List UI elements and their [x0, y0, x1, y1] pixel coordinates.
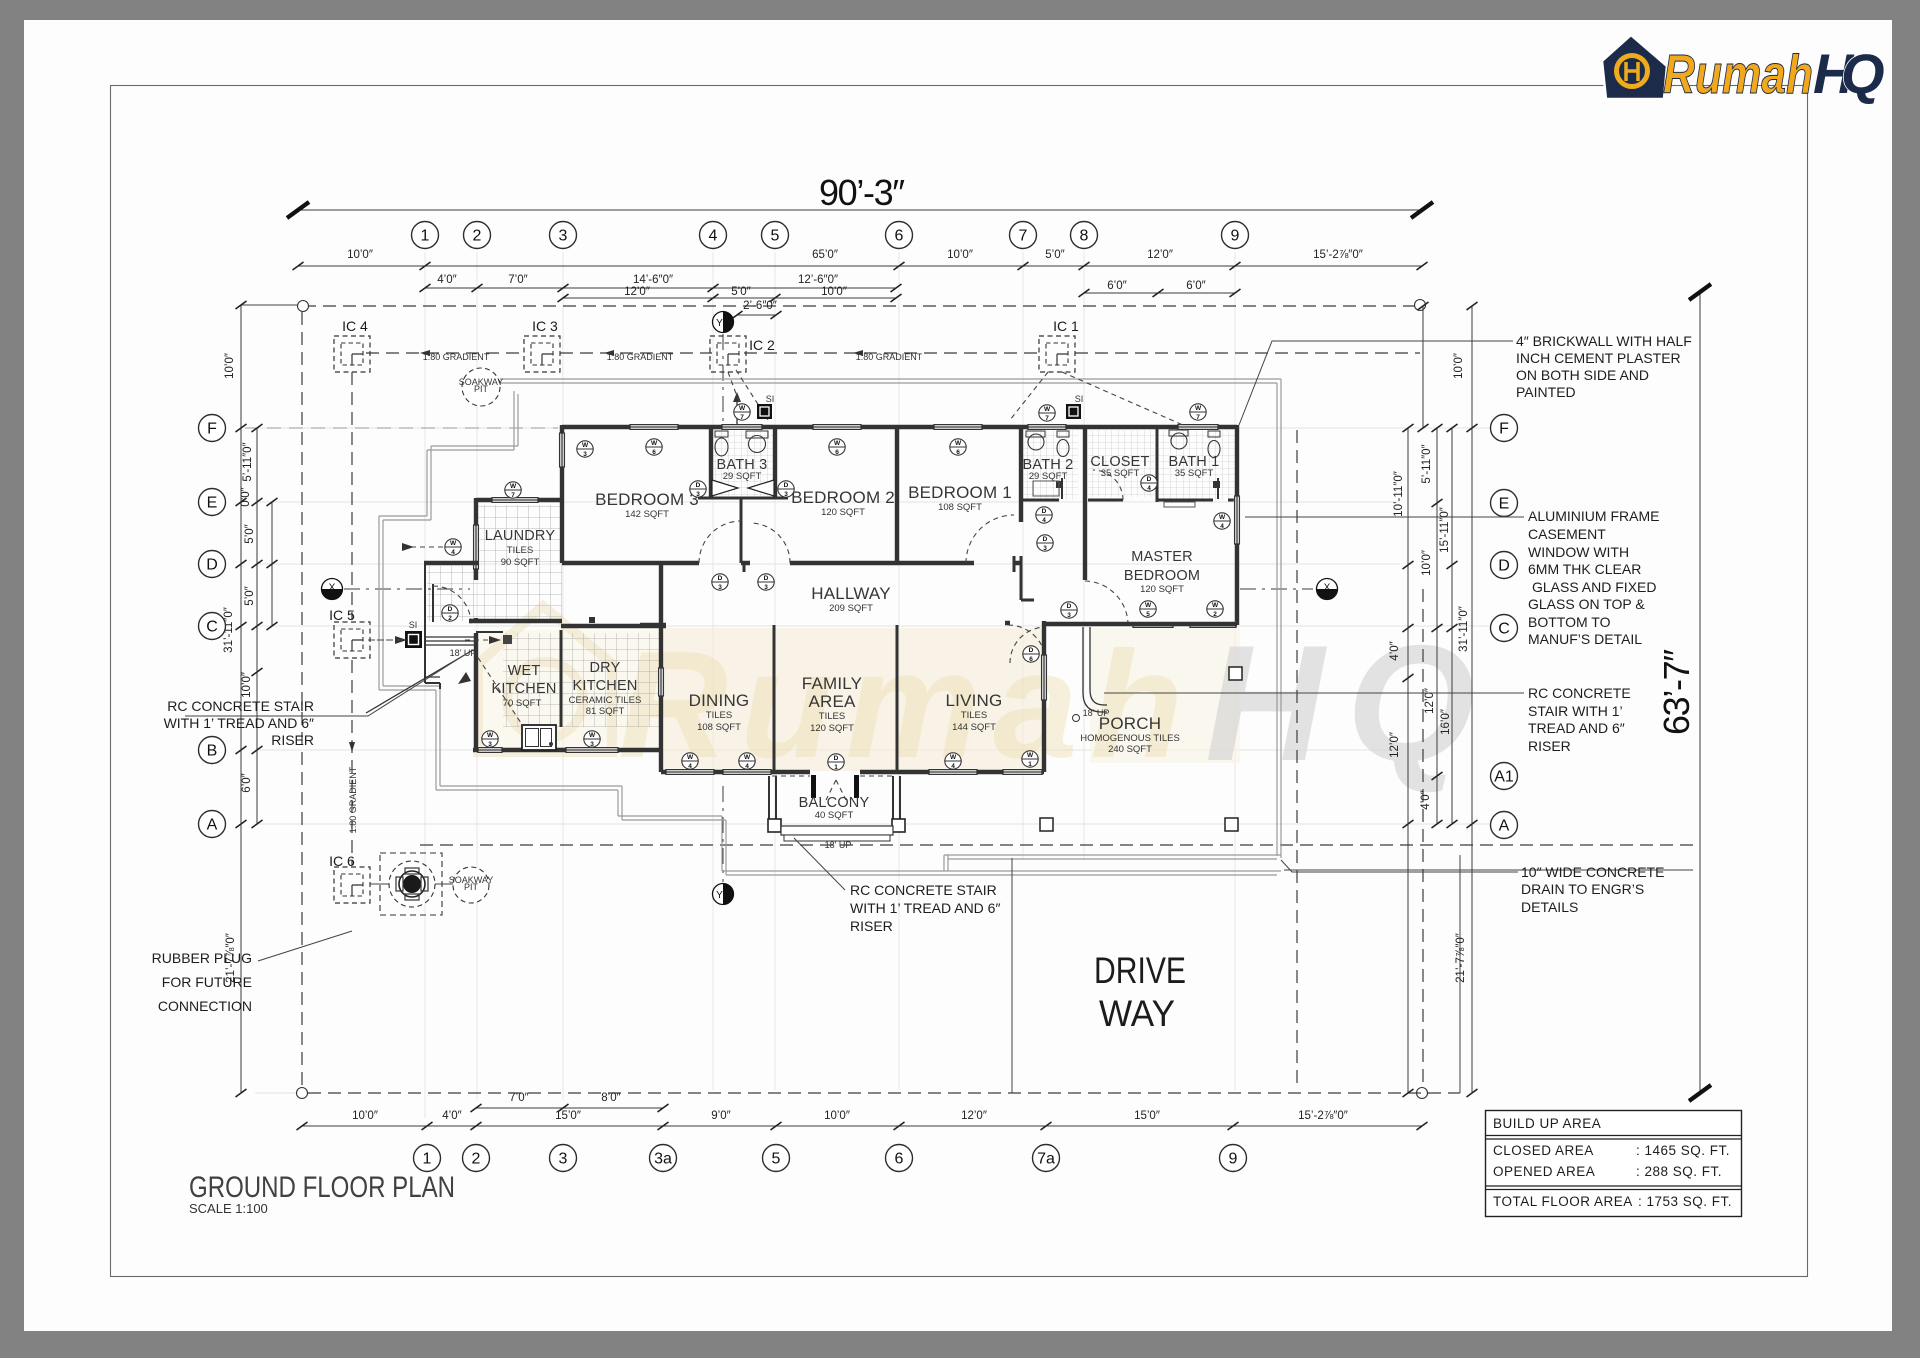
svg-text:X: X [329, 583, 336, 594]
svg-text:2: 2 [472, 1151, 481, 1168]
svg-text:15’-2⅞″0″: 15’-2⅞″0″ [1298, 1110, 1348, 1122]
svg-text:3: 3 [1067, 612, 1071, 619]
svg-text:81 SQFT: 81 SQFT [586, 706, 625, 717]
svg-text:15’-11″0″: 15’-11″0″ [1439, 507, 1451, 553]
svg-text:1:80 GRADIENT: 1:80 GRADIENT [423, 352, 490, 362]
svg-text:209 SQFT: 209 SQFT [829, 603, 873, 614]
svg-text:12’-6″0″: 12’-6″0″ [798, 274, 838, 286]
svg-text:IC 2: IC 2 [749, 337, 775, 353]
svg-text:GLASS ON TOP &: GLASS ON TOP & [1528, 596, 1645, 612]
svg-text:BEDROOM 1: BEDROOM 1 [908, 483, 1012, 502]
svg-text:6’0″: 6’0″ [1186, 280, 1205, 292]
svg-text:X: X [1324, 583, 1331, 594]
svg-text:W: W [1027, 752, 1034, 759]
svg-text:6: 6 [652, 449, 656, 456]
svg-text:CLOSED AREA: CLOSED AREA [1493, 1143, 1594, 1158]
svg-text:D: D [1067, 603, 1072, 610]
svg-text:D: D [718, 575, 723, 582]
svg-text:RISER: RISER [271, 732, 314, 748]
svg-text:5’-11″0″: 5’-11″0″ [242, 442, 254, 481]
svg-text:3: 3 [784, 491, 788, 498]
svg-text:9: 9 [1231, 228, 1240, 245]
svg-text:2: 2 [1213, 611, 1217, 618]
svg-text:4’0″: 4’0″ [1420, 790, 1432, 809]
svg-text:6: 6 [835, 449, 839, 456]
svg-text:F: F [1499, 421, 1509, 438]
svg-text:18’ UP: 18’ UP [825, 840, 852, 850]
svg-text:AREA: AREA [808, 692, 856, 711]
svg-text:10’-11″0″: 10’-11″0″ [1393, 471, 1405, 517]
svg-text:WITH 1’ TREAD AND 6″: WITH 1’ TREAD AND 6″ [850, 900, 1000, 916]
svg-text:SI: SI [409, 620, 418, 630]
svg-text:4: 4 [709, 228, 718, 245]
svg-text:5’0″: 5’0″ [1045, 249, 1064, 261]
svg-text:9’0″: 9’0″ [711, 1110, 730, 1122]
svg-text:W: W [950, 754, 957, 761]
svg-text:W: W [651, 440, 658, 447]
svg-text:W: W [450, 540, 457, 547]
svg-text:A: A [1499, 818, 1510, 835]
svg-text:5: 5 [772, 1151, 781, 1168]
svg-text:B: B [207, 743, 218, 760]
svg-text:D: D [764, 575, 769, 582]
svg-text:ON BOTH SIDE AND: ON BOTH SIDE AND [1516, 367, 1649, 383]
svg-text:3: 3 [488, 741, 492, 748]
svg-text:5’-11″0″: 5’-11″0″ [1421, 444, 1433, 483]
svg-text:F: F [207, 421, 217, 438]
svg-text:12’0″: 12’0″ [1147, 249, 1173, 261]
svg-text:3: 3 [590, 741, 594, 748]
svg-text:DRAIN TO ENGR’S: DRAIN TO ENGR’S [1521, 881, 1644, 897]
svg-text:D: D [206, 557, 218, 574]
svg-text:A1: A1 [1494, 769, 1514, 786]
svg-text:W: W [1044, 406, 1051, 413]
svg-text:12’0″: 12’0″ [624, 286, 650, 298]
svg-text:TREAD AND 6″: TREAD AND 6″ [1528, 720, 1625, 736]
svg-text:35 SQFT: 35 SQFT [1101, 468, 1140, 479]
svg-text:BEDROOM: BEDROOM [1124, 568, 1200, 584]
svg-text:W: W [955, 440, 962, 447]
svg-text:10’0″: 10’0″ [824, 1110, 850, 1122]
svg-text:10’0″: 10’0″ [352, 1110, 378, 1122]
svg-text:4″ BRICKWALL WITH HALF: 4″ BRICKWALL WITH HALF [1516, 333, 1692, 349]
svg-text:3: 3 [559, 1151, 568, 1168]
svg-text:Q: Q [1841, 42, 1885, 105]
svg-text:W: W [1145, 602, 1152, 609]
svg-text:DRIVE: DRIVE [1094, 950, 1186, 991]
svg-text:18’ UP: 18’ UP [450, 648, 477, 658]
svg-text:7: 7 [1019, 228, 1028, 245]
svg-text:PORCH: PORCH [1099, 714, 1161, 733]
svg-text:65’0″: 65’0″ [812, 249, 838, 261]
svg-text:4’0″: 4’0″ [442, 1110, 461, 1122]
svg-text:E: E [1499, 496, 1510, 513]
svg-text:14’-6″0″: 14’-6″0″ [633, 274, 673, 286]
svg-text:4’0″: 4’0″ [1389, 641, 1401, 660]
svg-text:W: W [687, 754, 694, 761]
svg-text:9: 9 [1229, 1151, 1238, 1168]
svg-text:ALUMINIUM FRAME: ALUMINIUM FRAME [1528, 508, 1659, 524]
svg-text:10’0″: 10’0″ [224, 353, 236, 379]
svg-text:INCH CEMENT PLASTER: INCH CEMENT PLASTER [1516, 350, 1681, 366]
svg-text:29 SQFT: 29 SQFT [1029, 471, 1068, 482]
svg-text:WAY: WAY [1099, 993, 1175, 1034]
svg-text:3a: 3a [654, 1151, 672, 1168]
svg-text:240 SQFT: 240 SQFT [1108, 744, 1152, 755]
svg-text:RC CONCRETE STAIR: RC CONCRETE STAIR [167, 698, 314, 714]
svg-text:TILES: TILES [819, 711, 845, 722]
svg-text:RC CONCRETE: RC CONCRETE [1528, 685, 1631, 701]
svg-text:TILES: TILES [507, 545, 533, 556]
svg-text:GROUND FLOOR PLAN: GROUND FLOOR PLAN [189, 1171, 455, 1204]
svg-text:STAIR WITH 1’: STAIR WITH 1’ [1528, 703, 1623, 719]
svg-text:D: D [1147, 476, 1152, 483]
svg-text:8: 8 [1080, 228, 1089, 245]
svg-text:15’0″: 15’0″ [1134, 1110, 1160, 1122]
svg-text:PIT: PIT [464, 882, 479, 892]
svg-text:2’-6″0″: 2’-6″0″ [743, 300, 777, 312]
svg-text:C: C [206, 619, 218, 636]
svg-text:4: 4 [1042, 517, 1046, 524]
svg-text:1: 1 [421, 228, 430, 245]
svg-text:142 SQFT: 142 SQFT [625, 509, 669, 520]
svg-text:E: E [207, 495, 218, 512]
svg-text:FOR FUTURE: FOR FUTURE [162, 974, 252, 990]
svg-text:SI: SI [766, 394, 775, 404]
svg-text:6: 6 [956, 449, 960, 456]
svg-text:BOTTOM TO: BOTTOM TO [1528, 614, 1611, 630]
svg-text:4: 4 [688, 763, 692, 770]
svg-text:90’-3″: 90’-3″ [819, 172, 905, 213]
svg-text:TILES: TILES [706, 710, 732, 721]
svg-text:FAMILY: FAMILY [802, 674, 862, 693]
svg-text:IC 5: IC 5 [329, 607, 355, 623]
svg-text:DRY: DRY [590, 660, 621, 676]
svg-text:: 288 SQ. FT.: : 288 SQ. FT. [1636, 1164, 1722, 1179]
svg-text:A: A [207, 817, 218, 834]
svg-text:29 SQFT: 29 SQFT [723, 471, 762, 482]
svg-text:W: W [589, 732, 596, 739]
svg-text:7: 7 [740, 414, 744, 421]
svg-text:BEDROOM 2: BEDROOM 2 [791, 488, 895, 507]
svg-text:CERAMIC TILES: CERAMIC TILES [569, 695, 642, 706]
svg-text:D: D [1043, 536, 1048, 543]
svg-text:2: 2 [448, 615, 452, 622]
svg-text:120 SQFT: 120 SQFT [821, 507, 865, 518]
svg-text:MANUF’S DETAIL: MANUF’S DETAIL [1528, 631, 1642, 647]
svg-text:W: W [744, 754, 751, 761]
svg-text:W: W [582, 442, 589, 449]
svg-text:DINING: DINING [689, 691, 750, 710]
svg-text:3: 3 [583, 451, 587, 458]
svg-text:90 SQFT: 90 SQFT [501, 557, 540, 568]
svg-text:3: 3 [764, 584, 768, 591]
svg-text:RISER: RISER [1528, 738, 1571, 754]
svg-text:1:80 GRADIENT: 1:80 GRADIENT [607, 352, 674, 362]
svg-text:10’0″: 10’0″ [241, 672, 253, 698]
svg-text:4: 4 [745, 763, 749, 770]
svg-text:120 SQFT: 120 SQFT [1140, 584, 1184, 595]
svg-text:W: W [1212, 602, 1219, 609]
svg-text:HALLWAY: HALLWAY [811, 584, 891, 603]
svg-text:W: W [510, 483, 517, 490]
svg-text:IC 4: IC 4 [342, 318, 368, 334]
svg-text:7’0″: 7’0″ [509, 1092, 528, 1104]
svg-text:4: 4 [451, 549, 455, 556]
svg-text:6’0″: 6’0″ [1107, 280, 1126, 292]
svg-text:D: D [696, 482, 701, 489]
svg-text:WINDOW WITH: WINDOW WITH [1528, 544, 1629, 560]
svg-text:6’0″: 6’0″ [241, 773, 253, 792]
svg-text:KITCHEN: KITCHEN [491, 681, 556, 697]
svg-text:12’0″: 12’0″ [961, 1110, 987, 1122]
svg-text:10’0″: 10’0″ [1421, 550, 1433, 576]
svg-text:4’0″: 4’0″ [437, 274, 456, 286]
svg-text:CONNECTION: CONNECTION [158, 998, 252, 1014]
svg-text:3: 3 [718, 584, 722, 591]
svg-text:WITH 1’ TREAD AND 6″: WITH 1’ TREAD AND 6″ [164, 715, 314, 731]
svg-text:4: 4 [1220, 523, 1224, 530]
svg-text:70 SQFT: 70 SQFT [503, 698, 542, 709]
svg-text:W: W [1219, 514, 1226, 521]
svg-text:6: 6 [895, 1151, 904, 1168]
svg-text:7: 7 [1045, 415, 1049, 422]
svg-text:HOMOGENOUS TILES: HOMOGENOUS TILES [1080, 733, 1180, 744]
svg-text:RISER: RISER [850, 918, 893, 934]
svg-text:6: 6 [895, 228, 904, 245]
svg-text:LIVING: LIVING [946, 691, 1003, 710]
svg-text:5: 5 [771, 228, 780, 245]
svg-text:D: D [834, 755, 839, 762]
svg-text:D: D [448, 606, 453, 613]
svg-text:TILES: TILES [961, 710, 987, 721]
svg-text:16’0″: 16’0″ [1440, 709, 1452, 735]
svg-text:5: 5 [1146, 611, 1150, 618]
svg-text:W: W [487, 732, 494, 739]
svg-text:10″ WIDE CONCRETE: 10″ WIDE CONCRETE [1521, 864, 1664, 880]
svg-text:KITCHEN: KITCHEN [572, 678, 637, 694]
svg-text:10’0″: 10’0″ [1453, 353, 1465, 379]
svg-text:IC 1: IC 1 [1053, 318, 1079, 334]
svg-text:LAUNDRY: LAUNDRY [485, 528, 556, 544]
svg-text:PAINTED: PAINTED [1516, 384, 1576, 400]
svg-text:IC 3: IC 3 [532, 318, 558, 334]
svg-text:0’0″: 0’0″ [240, 487, 252, 506]
svg-text:40 SQFT: 40 SQFT [815, 810, 854, 821]
svg-text:15’-2⅞″0″: 15’-2⅞″0″ [1313, 249, 1363, 261]
svg-text:D: D [1029, 647, 1034, 654]
svg-text:144 SQFT: 144 SQFT [952, 722, 996, 733]
svg-text:CASEMENT: CASEMENT [1528, 526, 1606, 542]
svg-text:6MM THK CLEAR: 6MM THK CLEAR [1528, 561, 1641, 577]
svg-text:: 1753 SQ. FT.: : 1753 SQ. FT. [1638, 1194, 1732, 1209]
svg-text:4: 4 [951, 763, 955, 770]
svg-text:W: W [739, 405, 746, 412]
svg-text:2: 2 [473, 228, 482, 245]
svg-text:BALCONY: BALCONY [799, 795, 870, 811]
svg-text:10’0″: 10’0″ [347, 249, 373, 261]
svg-text:1:80 GRADIENT: 1:80 GRADIENT [348, 766, 358, 833]
svg-text:5’0″: 5’0″ [244, 586, 256, 605]
svg-text:21’-7⅞″0″: 21’-7⅞″0″ [1455, 933, 1467, 983]
svg-text:10’0″: 10’0″ [947, 249, 973, 261]
svg-text:7’0″: 7’0″ [508, 274, 527, 286]
svg-text:RC CONCRETE STAIR: RC CONCRETE STAIR [850, 882, 997, 898]
svg-text:5’0″: 5’0″ [731, 286, 750, 298]
svg-text:D: D [1498, 558, 1510, 575]
svg-text:108 SQFT: 108 SQFT [938, 502, 982, 513]
svg-text:BUILD UP AREA: BUILD UP AREA [1493, 1116, 1601, 1131]
svg-text:D: D [1042, 508, 1047, 515]
svg-text:C: C [1498, 621, 1510, 638]
svg-text:W: W [834, 440, 841, 447]
svg-text:1: 1 [1028, 761, 1032, 768]
svg-text:OPENED AREA: OPENED AREA [1493, 1164, 1595, 1179]
svg-text:RUBBER PLUG: RUBBER PLUG [152, 950, 252, 966]
svg-text:Rumah: Rumah [1663, 43, 1813, 105]
svg-text:12’0″: 12’0″ [1389, 732, 1401, 758]
svg-text:7: 7 [1196, 414, 1200, 421]
svg-text:BEDROOM 3: BEDROOM 3 [595, 490, 699, 509]
svg-text:35 SQFT: 35 SQFT [1175, 468, 1214, 479]
svg-text:Y: Y [716, 890, 723, 901]
svg-text:8’0″: 8’0″ [601, 1092, 620, 1104]
svg-text:1:80 GRADIENT: 1:80 GRADIENT [856, 352, 923, 362]
svg-text:PIT: PIT [474, 384, 489, 394]
svg-text:MASTER: MASTER [1131, 549, 1193, 565]
svg-text:12’0″: 12’0″ [1424, 688, 1436, 714]
svg-text:GLASS AND FIXED: GLASS AND FIXED [1532, 579, 1656, 595]
svg-text:6: 6 [1029, 656, 1033, 663]
svg-text:108 SQFT: 108 SQFT [697, 722, 741, 733]
svg-text:1: 1 [834, 764, 838, 771]
svg-text:SCALE 1:100: SCALE 1:100 [189, 1201, 268, 1216]
svg-text:5’0″: 5’0″ [244, 524, 256, 543]
svg-text:WET: WET [508, 663, 541, 679]
svg-text:7: 7 [511, 492, 515, 499]
svg-text:1: 1 [423, 1151, 432, 1168]
svg-text:: 1465 SQ. FT.: : 1465 SQ. FT. [1636, 1143, 1730, 1158]
svg-text:DETAILS: DETAILS [1521, 899, 1578, 915]
svg-text:120 SQFT: 120 SQFT [810, 723, 854, 734]
svg-text:TOTAL FLOOR AREA: TOTAL FLOOR AREA [1493, 1194, 1633, 1209]
svg-text:Y: Y [716, 318, 723, 329]
svg-text:63’-7″: 63’-7″ [1656, 649, 1697, 735]
svg-text:D: D [784, 482, 789, 489]
svg-text:SI: SI [1075, 394, 1084, 404]
svg-text:3: 3 [1043, 545, 1047, 552]
svg-text:7a: 7a [1037, 1151, 1055, 1168]
svg-text:3: 3 [559, 228, 568, 245]
svg-text:3: 3 [696, 491, 700, 498]
svg-text:31’-11″0″: 31’-11″0″ [1458, 606, 1470, 652]
svg-text:4: 4 [1147, 485, 1151, 492]
svg-text:10’0″: 10’0″ [821, 286, 847, 298]
svg-text:W: W [1195, 405, 1202, 412]
